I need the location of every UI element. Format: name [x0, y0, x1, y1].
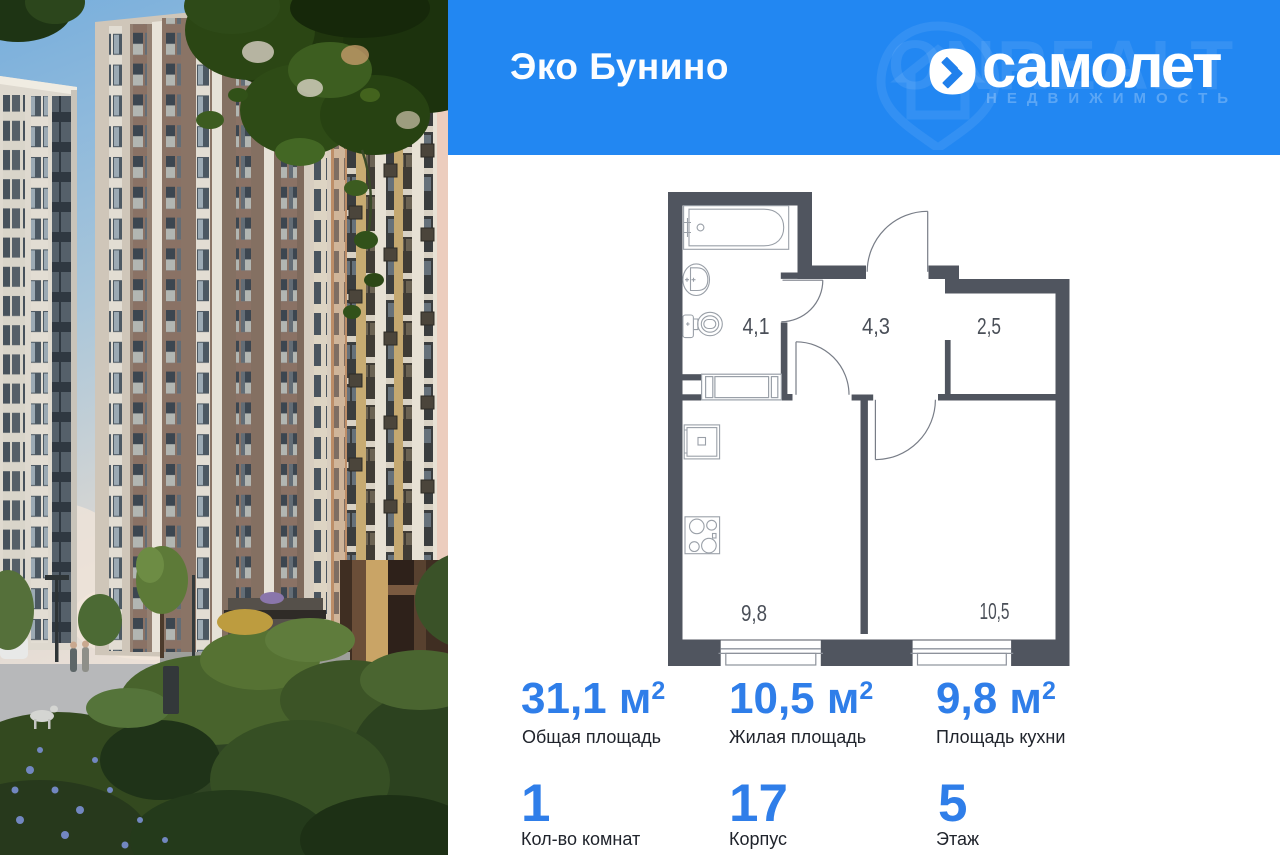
svg-text:9,8: 9,8 [741, 600, 767, 626]
svg-text:10,5: 10,5 [980, 598, 1010, 624]
svg-text:4,3: 4,3 [862, 313, 890, 339]
svg-text:4,1: 4,1 [743, 313, 770, 339]
svg-text:2,5: 2,5 [977, 313, 1001, 339]
